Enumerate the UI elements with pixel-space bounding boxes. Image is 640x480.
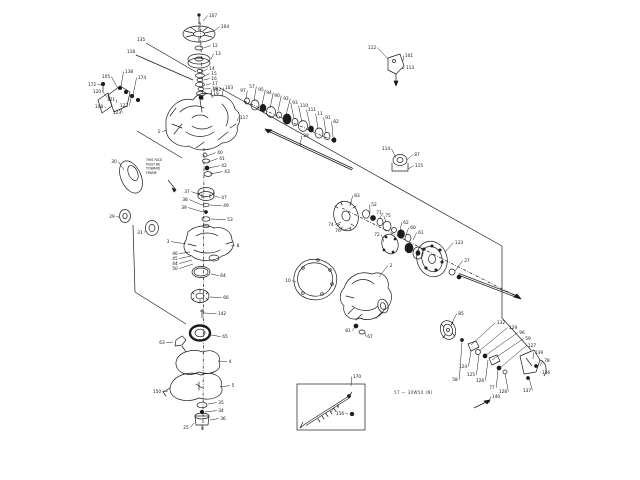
part-callout: 108 xyxy=(95,104,103,110)
callout-leader xyxy=(210,419,219,420)
part-callout: 1 xyxy=(158,129,161,135)
callout-leader xyxy=(104,107,106,108)
axle-part xyxy=(324,132,330,139)
part-callout: 25 xyxy=(183,425,189,431)
input-shaft xyxy=(268,131,352,170)
carrier-bolt xyxy=(385,236,387,238)
callout-leader xyxy=(452,314,457,323)
gasket-kidney-inner xyxy=(298,263,333,296)
callout-leader xyxy=(179,264,193,269)
callout-leader xyxy=(215,196,220,198)
part-callout: 52 xyxy=(371,202,377,208)
pin xyxy=(497,366,501,370)
upper-housing-hatch xyxy=(170,108,228,148)
part-callout: 47 xyxy=(221,195,227,201)
callout-leader xyxy=(188,208,203,212)
part-callout: 120 xyxy=(93,89,101,95)
brake-pad xyxy=(489,355,500,365)
part-callout: 82 xyxy=(333,119,339,125)
gear-bolt xyxy=(425,267,427,269)
callout-leader xyxy=(486,333,518,355)
part-callout: 129 xyxy=(509,325,517,331)
washer xyxy=(359,330,365,334)
part-callout: 97 xyxy=(240,88,246,94)
washer xyxy=(377,218,383,225)
part-callout: 118 xyxy=(127,49,135,55)
callout-leader xyxy=(116,100,117,103)
callout-leader xyxy=(406,228,409,235)
part-callout: 133 xyxy=(455,240,463,246)
axle-part xyxy=(309,126,314,132)
part-callout: 37 xyxy=(184,189,190,195)
part-callout: 172 xyxy=(88,82,96,88)
inset-box xyxy=(297,384,365,430)
upper-housing-detail xyxy=(172,100,236,137)
callout-leader xyxy=(501,346,527,367)
nut xyxy=(199,96,203,100)
brake-rod xyxy=(305,396,349,424)
case-detail xyxy=(346,280,378,311)
callout-leader xyxy=(190,423,194,428)
callout-leader xyxy=(144,230,146,233)
idler-wheel xyxy=(115,157,147,196)
callout-leader xyxy=(205,411,217,412)
note-arrowhead xyxy=(172,188,176,192)
bolt-head xyxy=(198,14,201,17)
part-callout: 75 xyxy=(385,213,391,219)
part-callout: 11 xyxy=(317,111,323,117)
callout-leader xyxy=(533,353,534,359)
callout-leader xyxy=(492,339,524,360)
callout-leader xyxy=(246,91,247,98)
gear-bolt xyxy=(423,248,425,250)
part-callout: 102 xyxy=(213,87,221,93)
callout-leader xyxy=(118,162,124,170)
lower-housing xyxy=(184,226,233,261)
ring-gear-inner xyxy=(418,244,445,275)
centerline xyxy=(203,148,204,430)
part-callout: 140 xyxy=(492,394,500,400)
part-callout: 174 xyxy=(138,75,146,81)
bearing xyxy=(371,216,376,221)
clip-tail xyxy=(182,346,186,352)
callout-leader xyxy=(203,16,208,21)
screw xyxy=(535,365,538,368)
callout-leader xyxy=(352,327,355,331)
part-callout: 31 xyxy=(137,230,143,236)
part-callout: 156 xyxy=(336,411,344,417)
callout-leader xyxy=(204,46,211,48)
part-callout: 53 xyxy=(227,217,233,223)
flange-bore xyxy=(397,158,403,163)
diagram-page: 1071041213135118141516171819172105138174… xyxy=(0,0,640,480)
case-boss-bore xyxy=(380,302,387,310)
part-callout: 103 xyxy=(225,85,233,91)
pin xyxy=(461,339,464,342)
part-callout: 30 xyxy=(111,159,117,165)
callout-leader xyxy=(479,328,508,351)
washer xyxy=(449,269,455,275)
fan-hub xyxy=(194,31,205,37)
callout-leader xyxy=(171,242,186,244)
bearing-hub xyxy=(146,221,159,236)
pulley-hub xyxy=(195,57,203,61)
callout-leader xyxy=(403,56,404,61)
part-callout: 41 xyxy=(219,156,225,162)
part-callout: 5 xyxy=(232,383,235,389)
rod-spring xyxy=(318,409,336,423)
part-callout: 72 xyxy=(374,232,380,238)
part-callout: 111 xyxy=(308,107,316,113)
part-callout: 104 xyxy=(221,24,229,30)
part-callout: 2 xyxy=(390,263,393,269)
assembly-note-text: FRAME xyxy=(146,171,157,175)
mount-bracket xyxy=(388,54,404,74)
part-callout: 65 xyxy=(222,334,228,340)
screw xyxy=(118,86,121,89)
housing-boss xyxy=(209,255,219,261)
gasket-kidney xyxy=(294,259,337,300)
bearing xyxy=(398,230,405,238)
hub-bore xyxy=(123,213,127,219)
spacer xyxy=(198,87,204,90)
part-callout: 92 xyxy=(283,96,289,102)
rotor-bore xyxy=(447,329,450,332)
callout-leader xyxy=(342,228,350,231)
axle-part xyxy=(277,112,282,118)
part-callout: 67 xyxy=(367,334,373,340)
axle-part xyxy=(315,128,323,138)
callout-leader xyxy=(445,243,454,252)
part-callout: 61 xyxy=(418,230,424,236)
part-callout: 132 xyxy=(497,320,505,326)
part-callout: 121 xyxy=(107,97,115,103)
part-callout: 13 xyxy=(215,51,221,57)
o-ring-small xyxy=(197,402,207,408)
part-callout: 58 xyxy=(452,377,458,383)
exploded-diagram-svg: 1071041213135118141516171819172105138174… xyxy=(0,0,640,480)
fan-blades xyxy=(185,26,213,42)
part-callout: 9 xyxy=(337,404,340,410)
input-shaft xyxy=(269,130,353,169)
part-callout: 76 xyxy=(335,228,341,234)
axle-part xyxy=(267,107,276,118)
part-callout: 83 xyxy=(354,193,360,199)
callout-leader xyxy=(179,252,190,254)
axle-shaft xyxy=(458,275,518,298)
axle-part xyxy=(292,118,298,125)
part-callout: 135 xyxy=(137,37,145,43)
callout-leader xyxy=(211,274,219,276)
gasket xyxy=(176,350,220,374)
bevel-gear xyxy=(198,188,214,197)
part-callout: 71 xyxy=(376,210,382,216)
callout-leader xyxy=(129,98,131,106)
gasket-hole xyxy=(302,292,305,295)
callout-leader xyxy=(191,192,198,194)
washer xyxy=(196,73,205,77)
callout-leader xyxy=(121,109,122,113)
part-callout: 66 xyxy=(223,295,229,301)
flange-base xyxy=(392,163,408,171)
bracket-detail xyxy=(526,358,532,366)
callout-leader xyxy=(207,153,216,156)
shift-plate xyxy=(98,93,112,113)
hub xyxy=(120,210,131,223)
callout-leader xyxy=(209,166,220,168)
part-callout: 96 xyxy=(519,330,525,336)
carrier-bolt xyxy=(383,249,385,251)
part-callout: 10 xyxy=(285,278,291,284)
part-callout: 77 xyxy=(489,385,495,391)
part-callout: 142 xyxy=(218,311,226,317)
part-callout: 127 xyxy=(528,343,536,349)
washer xyxy=(392,228,397,233)
part-callout: 78 xyxy=(544,358,550,364)
part-callout: 59 xyxy=(525,336,531,342)
part-callout: 49 xyxy=(223,203,229,209)
upper-housing xyxy=(166,93,240,150)
case-hatch xyxy=(348,308,382,320)
part-callout: 38 xyxy=(182,197,188,203)
callout-leader xyxy=(162,391,168,392)
pan-detail xyxy=(196,382,202,390)
callout-leader xyxy=(468,351,471,367)
pinion-gear xyxy=(405,243,413,253)
callout-leader xyxy=(407,155,413,160)
part-callout: 60 xyxy=(410,225,416,231)
part-callout: 39 xyxy=(181,205,187,211)
callout-leader xyxy=(408,166,414,169)
part-callout: 12 xyxy=(212,43,218,49)
washer xyxy=(405,234,411,241)
part-callout: 28 xyxy=(303,133,309,139)
bearing-bore xyxy=(149,224,155,231)
o-ring-inner xyxy=(194,268,208,276)
border-line xyxy=(502,318,531,350)
callout-leader xyxy=(377,48,388,59)
pan-tab xyxy=(163,388,170,396)
part-callout: 3 xyxy=(167,239,170,245)
pin xyxy=(205,211,208,214)
screw xyxy=(101,82,104,85)
idler-wheel-hub xyxy=(126,164,141,182)
part-callout: 112 xyxy=(368,45,376,51)
fastener xyxy=(350,412,354,416)
axle-part xyxy=(332,138,336,143)
callout-leader xyxy=(391,149,396,158)
detent-ball xyxy=(205,166,209,170)
callout-leader xyxy=(204,313,217,314)
lower-housing-detail xyxy=(188,233,232,253)
part-callout: 85 xyxy=(458,311,464,317)
part-callout: 4 xyxy=(229,359,232,365)
brake-rotor xyxy=(438,319,458,342)
part-callout: 34 xyxy=(218,408,224,414)
part-callout: 74 xyxy=(328,222,334,228)
part-callout: 95 xyxy=(258,87,264,93)
pin xyxy=(203,153,207,157)
axle-shaft xyxy=(459,274,519,297)
callout-leader xyxy=(208,403,217,404)
part-callout: 94 xyxy=(266,90,272,96)
arrowhead xyxy=(394,81,398,86)
screw xyxy=(136,98,139,101)
axle-part xyxy=(283,114,291,124)
part-callout: 101 xyxy=(405,53,413,59)
part-callout: 57 xyxy=(249,84,255,90)
part-callout: 93 xyxy=(292,100,298,106)
washer xyxy=(196,82,205,86)
callout-leader xyxy=(211,335,221,337)
part-callout: 128 xyxy=(499,389,507,395)
part-callout: 63 xyxy=(159,340,165,346)
callout-leader xyxy=(179,260,192,264)
part-callout: 126 xyxy=(476,378,484,384)
part-callout: 114 xyxy=(382,146,390,152)
washer xyxy=(195,46,203,50)
leader-line xyxy=(137,131,182,158)
callout-leader xyxy=(205,74,210,76)
spacer xyxy=(197,78,203,81)
ring-gear-bore xyxy=(429,255,436,264)
callout-leader xyxy=(237,118,239,121)
callout-leader xyxy=(485,360,488,381)
callout-leader xyxy=(213,27,220,32)
part-callout: 36 xyxy=(220,416,226,422)
pulley xyxy=(188,54,210,64)
bevel-gear xyxy=(198,192,214,201)
washer xyxy=(503,370,507,374)
callout-leader xyxy=(121,72,124,86)
carrier-bolt xyxy=(394,238,396,240)
part-callout: 62 xyxy=(403,220,409,226)
part-callout: 81 xyxy=(345,328,351,334)
pulley xyxy=(188,58,210,68)
callout-leader xyxy=(166,342,173,343)
part-callout: 90 xyxy=(274,93,280,99)
callout-leader xyxy=(211,54,214,59)
callout-leader xyxy=(189,200,202,205)
part-callout: 115 xyxy=(415,163,423,169)
retainer-clip xyxy=(175,336,186,346)
axle-part xyxy=(299,121,308,132)
oil-pan xyxy=(170,373,222,400)
washer xyxy=(202,217,210,221)
washer xyxy=(363,210,370,218)
callout-leader xyxy=(204,69,208,71)
part-callout: 42 xyxy=(221,163,227,169)
brake-rotor-inner xyxy=(442,323,454,337)
part-callout: 50 xyxy=(172,266,178,272)
part-callout: 40 xyxy=(217,150,223,156)
part-callout: 125 xyxy=(467,372,475,378)
figure-label: 57 — 30W50 (N) xyxy=(394,390,433,395)
part-callout: 138 xyxy=(125,69,133,75)
bearing-ring xyxy=(190,326,210,341)
part-callout: 64 xyxy=(220,273,226,279)
callout-leader xyxy=(179,256,191,259)
part-callout: 107 xyxy=(209,13,217,19)
drain-plug xyxy=(195,416,209,425)
part-callout: 29 xyxy=(109,214,115,220)
cluster-gear-hub xyxy=(196,293,204,299)
callout-leader xyxy=(505,374,508,392)
part-callout: 27 xyxy=(464,258,470,264)
part-callout: 113 xyxy=(406,65,414,71)
callout-leader xyxy=(133,78,137,95)
leader-line xyxy=(135,292,186,324)
washer xyxy=(203,159,210,163)
part-callout: 136 xyxy=(542,370,550,376)
callout-leader xyxy=(459,342,462,380)
gear-bolt xyxy=(441,261,443,263)
leader-line xyxy=(133,225,135,292)
callout-leader xyxy=(471,323,496,345)
part-callout: 8 xyxy=(237,243,240,249)
callout-leader xyxy=(206,84,211,85)
part-callout: 139 xyxy=(535,350,543,356)
part-callout: 170 xyxy=(353,374,361,380)
callout-leader xyxy=(210,205,222,206)
callout-leader xyxy=(351,377,352,386)
callout-leader xyxy=(455,261,463,271)
part-callout: 43 xyxy=(224,169,230,175)
screw xyxy=(124,90,127,93)
part-callout: 105 xyxy=(102,74,110,80)
part-callout: 150 xyxy=(153,389,161,395)
gear-bolt xyxy=(439,249,441,251)
callout-leader xyxy=(413,233,417,240)
callout-leader xyxy=(365,333,366,337)
bracket-hole xyxy=(393,60,396,63)
rod-hook xyxy=(300,422,305,428)
centerline xyxy=(342,208,518,297)
callout-leader xyxy=(476,355,479,375)
part-callout: 137 xyxy=(523,388,531,394)
carrier-bolt xyxy=(392,251,394,253)
part-callout: 35 xyxy=(218,400,224,406)
part-callout: 87 xyxy=(414,152,420,158)
gear-bolt xyxy=(431,245,433,247)
part-callout: 91 xyxy=(325,115,331,121)
gear xyxy=(383,221,391,231)
part-callout: 123 xyxy=(113,110,121,116)
callout-leader xyxy=(211,219,226,220)
callout-leader xyxy=(496,370,498,388)
gear-bolt xyxy=(435,269,437,271)
callout-leader xyxy=(540,361,543,366)
callout-leader xyxy=(111,77,117,87)
callout-leader xyxy=(210,297,222,298)
part-callout: 122 xyxy=(120,103,128,109)
part-callout: 117 xyxy=(240,115,248,121)
callout-leader xyxy=(204,79,210,80)
axle-part xyxy=(260,104,266,111)
